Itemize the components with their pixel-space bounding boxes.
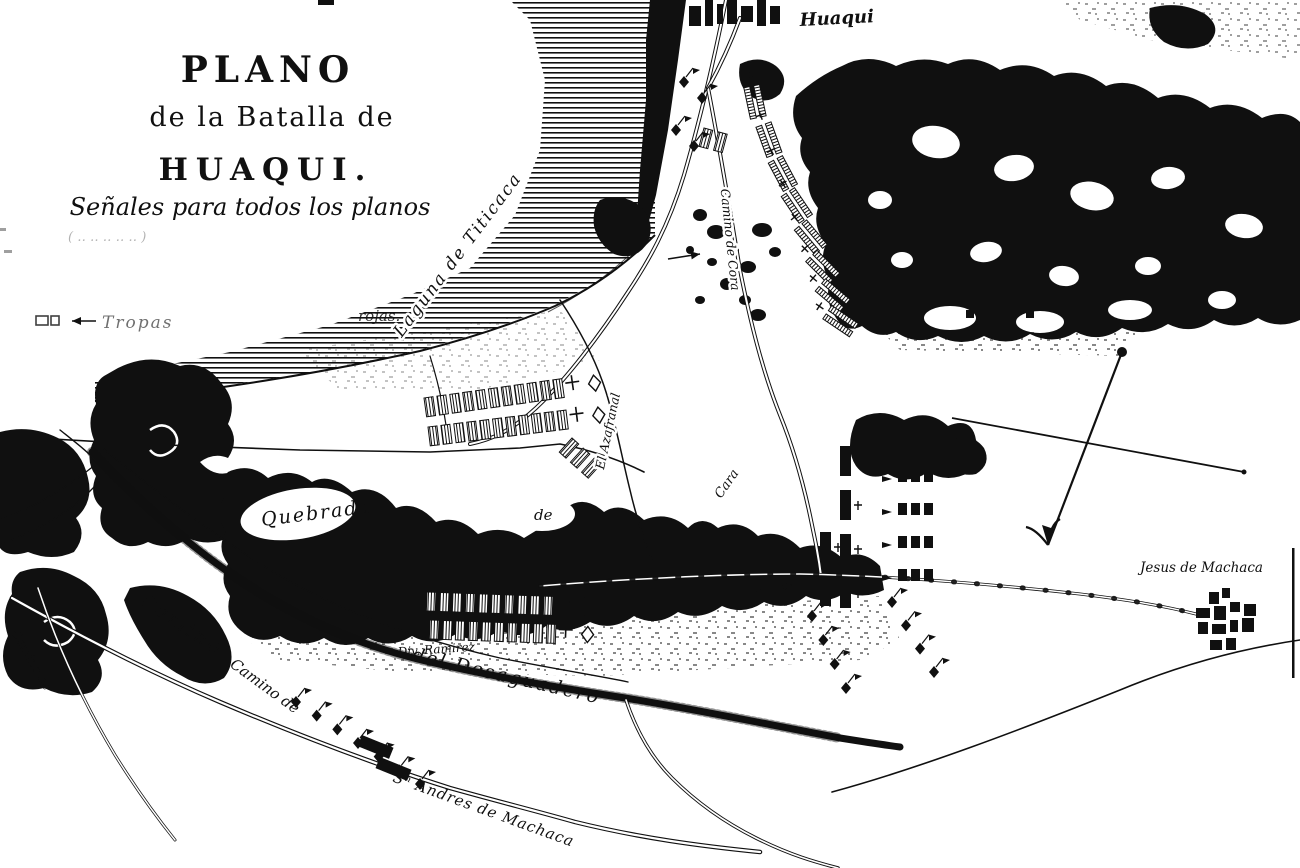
movement-arrow [72,317,96,325]
label-jesus-de-machaca: Jesus de Machaca [1137,560,1263,576]
title-faded-line: ( ‥ ‥ ‥ ‥ ‥ ) [68,230,146,245]
title-senales: Señales para todos los planos [70,193,431,221]
label-huaqui-town: Huaqui [798,6,874,31]
river-lower [626,700,838,868]
jesus-de-machaca-village [1196,588,1256,650]
legend-troops-symbol [36,316,59,325]
movement-arrow [668,250,701,259]
battle-map-of-huaqui: PLANO de la Batalla de HUAQUI. Señales p… [0,0,1300,868]
hatched-pair-upper [699,128,727,153]
title-huaqui: HUAQUI. [159,152,374,188]
legend-tropas-label: Tropas [102,313,173,333]
north-arrow [952,348,1246,546]
label-el-azafranal: El Azafranal [592,391,623,471]
label-cara-fragment: Cara [712,467,742,502]
trail-bottom-right [832,640,1300,792]
huaqui-village [689,0,780,26]
title-line2: de la Batalla de [149,102,394,133]
square-platoons [882,470,933,581]
label-camino-cora: Camino de Cora [718,188,744,291]
label-de-fragment: de [534,506,553,524]
title-plano: PLANO [181,49,356,91]
label-camino-san-andres-2: Sⁿ Andres de Machaca [391,768,577,850]
